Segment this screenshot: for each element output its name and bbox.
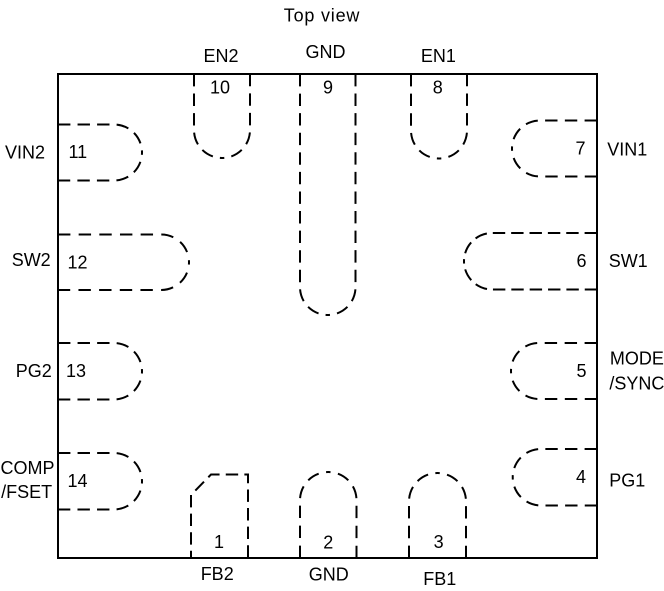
svg-text:8: 8 (433, 78, 443, 98)
svg-text:SW1: SW1 (609, 251, 648, 271)
svg-text:7: 7 (575, 139, 585, 159)
svg-text:11: 11 (69, 142, 88, 162)
svg-text:VIN2: VIN2 (5, 143, 45, 163)
svg-text:COMP: COMP (1, 458, 55, 478)
svg-text:3: 3 (434, 532, 444, 552)
svg-text:EN2: EN2 (203, 46, 238, 66)
svg-text:GND: GND (309, 565, 349, 585)
svg-text:PG1: PG1 (609, 470, 645, 490)
svg-text:FB1: FB1 (423, 569, 456, 589)
svg-text:EN1: EN1 (421, 46, 456, 66)
svg-text:FB2: FB2 (201, 564, 234, 584)
svg-text:10: 10 (210, 78, 230, 98)
svg-text:4: 4 (576, 467, 586, 487)
svg-text:1: 1 (214, 532, 224, 552)
svg-text:13: 13 (66, 361, 86, 381)
svg-text:/SYNC: /SYNC (609, 374, 664, 394)
svg-text:SW2: SW2 (12, 250, 51, 270)
svg-text:12: 12 (68, 253, 88, 273)
svg-text:Top view: Top view (284, 6, 361, 26)
svg-text:PG2: PG2 (16, 361, 52, 381)
svg-text:9: 9 (323, 78, 333, 98)
svg-text:MODE: MODE (610, 349, 664, 369)
svg-text:VIN1: VIN1 (607, 139, 647, 159)
svg-text:6: 6 (576, 251, 586, 271)
svg-text:2: 2 (323, 533, 333, 553)
svg-text:14: 14 (68, 471, 88, 491)
svg-text:5: 5 (576, 361, 586, 381)
svg-text:/FSET: /FSET (1, 482, 52, 502)
svg-text:GND: GND (306, 42, 346, 62)
